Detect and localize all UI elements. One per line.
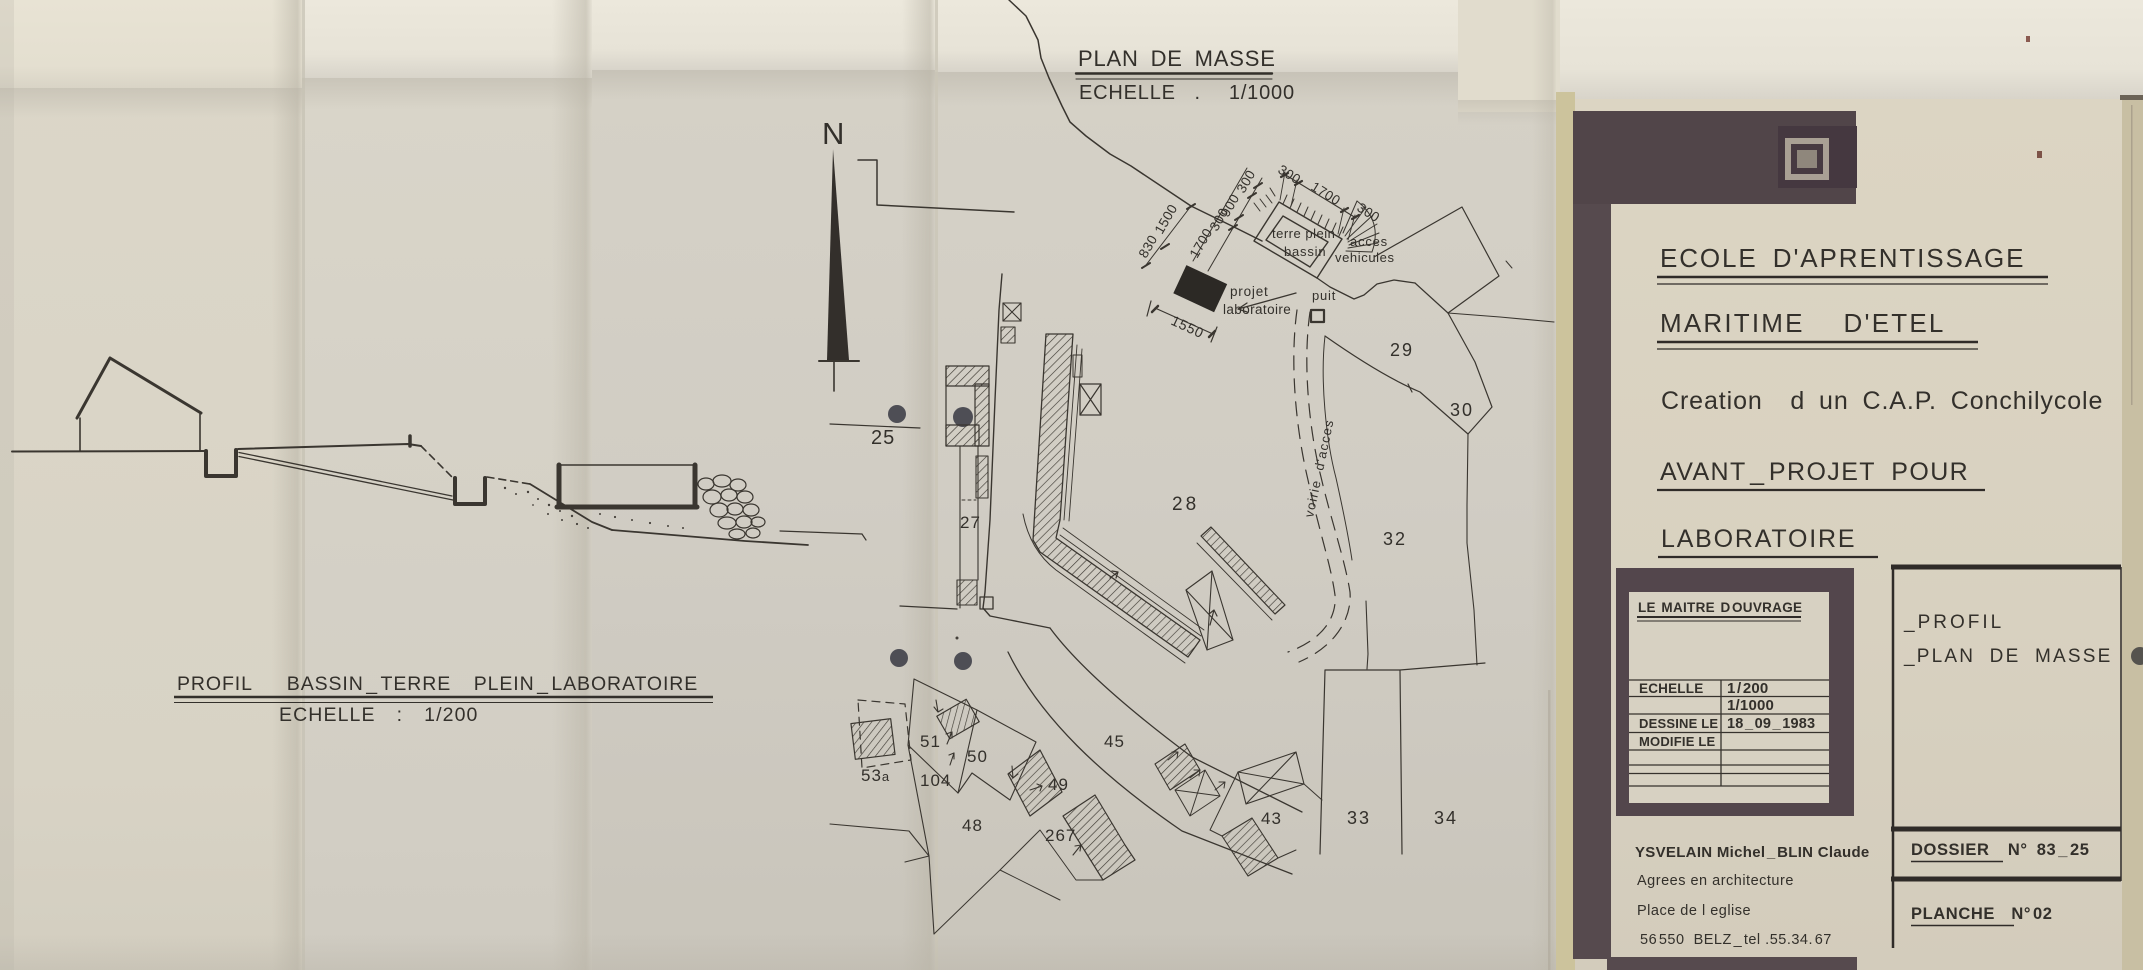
svg-text:56 550 BELZ _ tel .55.34. 67: 56 550 BELZ _ tel .55.34. 67 <box>1640 932 1832 948</box>
svg-text:51: 51 <box>920 732 941 751</box>
svg-text:30: 30 <box>1450 400 1474 420</box>
svg-text:45: 45 <box>1104 732 1125 751</box>
svg-text:25: 25 <box>871 427 895 449</box>
svg-text:N: N <box>822 116 844 151</box>
svg-text:50: 50 <box>967 747 988 766</box>
svg-text:projet: projet <box>1230 284 1269 299</box>
svg-text:PLAN DE MASSE: PLAN DE MASSE <box>1078 46 1276 71</box>
svg-text:YSVELAIN Michel _ BLIN Claude: YSVELAIN Michel _ BLIN Claude <box>1635 844 1870 861</box>
svg-text:vehicules: vehicules <box>1335 250 1395 265</box>
svg-text:ECHELLE: ECHELLE <box>1639 681 1703 696</box>
svg-text:LE MAITRE D OUVRAGE: LE MAITRE D OUVRAGE <box>1638 600 1802 615</box>
svg-text:MARITIME D'ETEL: MARITIME D'ETEL <box>1660 308 1946 338</box>
svg-text:Place de l eglise: Place de l eglise <box>1637 903 1751 919</box>
svg-text:acces: acces <box>1350 234 1388 249</box>
svg-text:PROFIL BASSIN _ TERRE PLEIN: PROFIL BASSIN _ TERRE PLEIN _ LABORATOIR… <box>177 673 698 695</box>
svg-text:33: 33 <box>1347 808 1371 828</box>
svg-text:28: 28 <box>1172 494 1199 515</box>
svg-text:Agrees en architecture: Agrees en architecture <box>1637 873 1794 889</box>
svg-text:ECHELLE . 1/1000: ECHELLE . 1/1000 <box>1079 82 1295 104</box>
svg-text:bassin: bassin <box>1284 244 1326 259</box>
svg-text:_PLAN DE MASSE: _PLAN DE MASSE <box>1903 646 2112 667</box>
svg-text:1/1000: 1/1000 <box>1727 697 1774 714</box>
svg-text:18 _ 09 _ 1983: 18 _ 09 _ 1983 <box>1727 716 1815 732</box>
svg-text:LABORATOIRE: LABORATOIRE <box>1661 525 1856 553</box>
svg-text:48: 48 <box>962 816 983 835</box>
svg-text:MODIFIE LE: MODIFIE LE <box>1639 734 1716 749</box>
svg-text:1 / 200: 1 / 200 <box>1727 680 1768 697</box>
svg-text:34: 34 <box>1434 808 1458 828</box>
svg-text:32: 32 <box>1383 529 1407 549</box>
svg-text:ECOLE D'APRENTISSAGE: ECOLE D'APRENTISSAGE <box>1660 243 2025 273</box>
svg-text:_PROFIL: _PROFIL <box>1903 612 2004 633</box>
svg-text:AVANT _ PROJET POUR: AVANT _ PROJET POUR <box>1660 458 1969 486</box>
svg-text:ECHELLE : 1/200: ECHELLE : 1/200 <box>279 704 478 726</box>
svg-text:terre plein: terre plein <box>1272 226 1335 241</box>
svg-text:puit: puit <box>1312 288 1336 303</box>
svg-text:53a: 53a <box>861 766 890 785</box>
svg-text:Creation d un C.A.P. Conchily: Creation d un C.A.P. Conchilycole <box>1661 387 2103 415</box>
svg-text:PLANCHE N° 02: PLANCHE N° 02 <box>1911 905 2053 923</box>
svg-text:DESSINE LE: DESSINE LE <box>1639 716 1718 731</box>
svg-text:29: 29 <box>1390 340 1414 360</box>
svg-text:104: 104 <box>920 771 951 790</box>
svg-text:43: 43 <box>1261 809 1282 828</box>
svg-text:27: 27 <box>960 513 981 532</box>
svg-text:DOSSIER N° 83 _ 25: DOSSIER N° 83 _ 25 <box>1911 841 2090 859</box>
